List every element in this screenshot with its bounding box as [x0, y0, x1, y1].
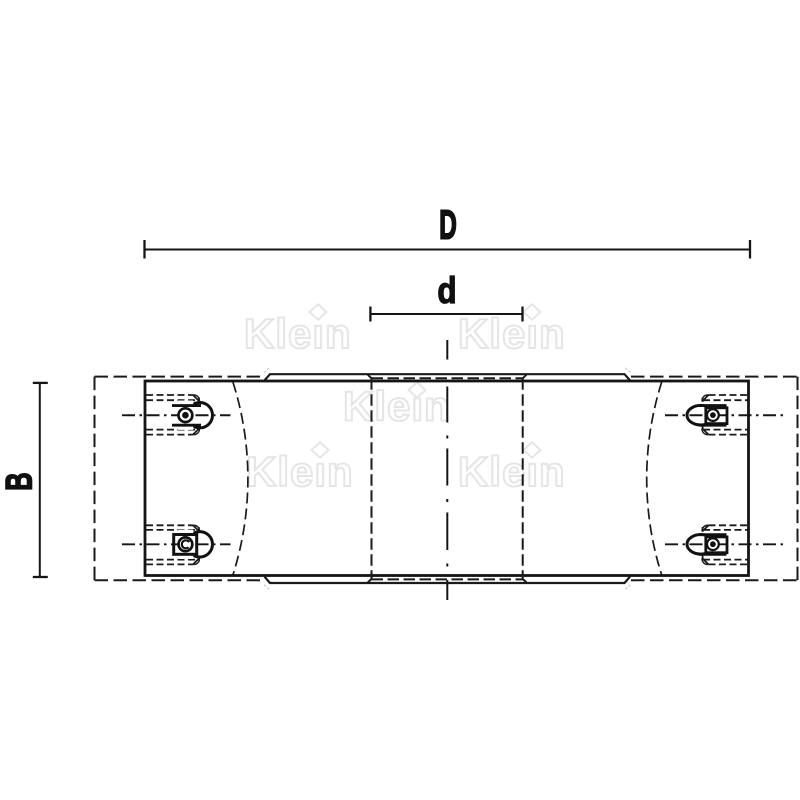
svg-text:Kleın: Kleın	[343, 383, 451, 430]
svg-text:Kleın: Kleın	[246, 448, 354, 495]
svg-text:Kleın: Kleın	[458, 448, 566, 495]
svg-text:Kleın: Kleın	[244, 310, 352, 357]
svg-text:D: D	[439, 203, 457, 248]
svg-text:B: B	[0, 472, 40, 490]
svg-text:Kleın: Kleın	[458, 310, 566, 357]
svg-text:d: d	[437, 271, 456, 312]
